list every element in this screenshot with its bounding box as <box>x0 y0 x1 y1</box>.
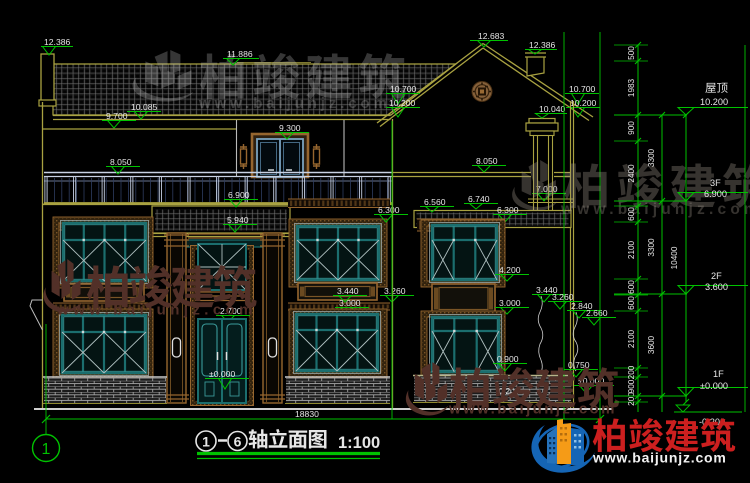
svg-text:6.900: 6.900 <box>704 189 727 199</box>
svg-text:3.000: 3.000 <box>339 298 361 308</box>
svg-text:900: 900 <box>627 379 636 393</box>
svg-text:10.085: 10.085 <box>131 102 158 112</box>
svg-text:2F: 2F <box>711 271 722 281</box>
svg-text:2100: 2100 <box>627 240 636 259</box>
svg-text:5.940: 5.940 <box>227 215 249 225</box>
svg-text:900: 900 <box>627 121 636 135</box>
svg-text:www.baijunjz.com: www.baijunjz.com <box>592 450 727 466</box>
svg-text:11.886: 11.886 <box>227 49 253 59</box>
svg-text:18830: 18830 <box>295 409 319 419</box>
svg-text:10.040: 10.040 <box>539 104 566 114</box>
svg-text:200: 200 <box>627 392 636 406</box>
svg-text:12.386: 12.386 <box>44 37 71 47</box>
svg-text:10400: 10400 <box>670 246 679 269</box>
svg-text:3300: 3300 <box>647 238 656 257</box>
svg-text:600: 600 <box>627 280 636 294</box>
svg-text:1: 1 <box>202 434 210 450</box>
svg-text:10.700: 10.700 <box>569 84 596 94</box>
svg-text:2100: 2100 <box>627 329 636 348</box>
svg-text:1983: 1983 <box>627 78 636 97</box>
svg-text:2.660: 2.660 <box>586 308 608 318</box>
svg-text:www.baijunjz.com: www.baijunjz.com <box>448 401 617 418</box>
svg-text:3300: 3300 <box>647 148 656 167</box>
svg-text:3F: 3F <box>710 178 721 188</box>
svg-text:1:100: 1:100 <box>338 434 380 452</box>
svg-text:200: 200 <box>627 365 636 379</box>
svg-text:www.baijunjz.com: www.baijunjz.com <box>56 302 257 319</box>
svg-text:1F: 1F <box>713 369 724 379</box>
svg-text:6.560: 6.560 <box>424 197 446 207</box>
svg-text:10.200: 10.200 <box>700 97 728 107</box>
svg-text:9.700: 9.700 <box>106 111 128 121</box>
svg-text:3600: 3600 <box>647 335 656 354</box>
svg-text:500: 500 <box>627 46 636 60</box>
svg-text:2400: 2400 <box>627 164 636 183</box>
svg-text:3.000: 3.000 <box>499 298 521 308</box>
svg-text:6: 6 <box>234 434 242 450</box>
svg-text:±0.000: ±0.000 <box>209 369 235 379</box>
svg-text:8.050: 8.050 <box>110 157 132 167</box>
svg-text:3.260: 3.260 <box>384 286 406 296</box>
svg-text:www.baijunjz.com: www.baijunjz.com <box>560 201 750 218</box>
svg-text:3.440: 3.440 <box>337 286 359 296</box>
svg-text:±0.000: ±0.000 <box>700 381 728 391</box>
svg-text:10.200: 10.200 <box>389 98 416 108</box>
svg-text:1: 1 <box>42 441 51 458</box>
svg-text:12.386: 12.386 <box>529 40 556 50</box>
svg-text:4.200: 4.200 <box>499 265 521 275</box>
svg-text:3.600: 3.600 <box>705 282 728 292</box>
svg-text:600: 600 <box>627 296 636 310</box>
svg-text:6.300: 6.300 <box>378 205 400 215</box>
svg-text:8.050: 8.050 <box>476 156 498 166</box>
svg-text:6.740: 6.740 <box>468 194 490 204</box>
svg-text:10.700: 10.700 <box>390 84 417 94</box>
svg-text:12.683: 12.683 <box>478 31 505 41</box>
svg-text:600: 600 <box>627 207 636 221</box>
svg-text:0.900: 0.900 <box>497 354 519 364</box>
svg-text:6.300: 6.300 <box>497 205 519 215</box>
svg-text:6.900: 6.900 <box>228 190 250 200</box>
svg-text:9.300: 9.300 <box>279 123 301 133</box>
svg-text:www.baijunjz.com: www.baijunjz.com <box>198 95 391 112</box>
